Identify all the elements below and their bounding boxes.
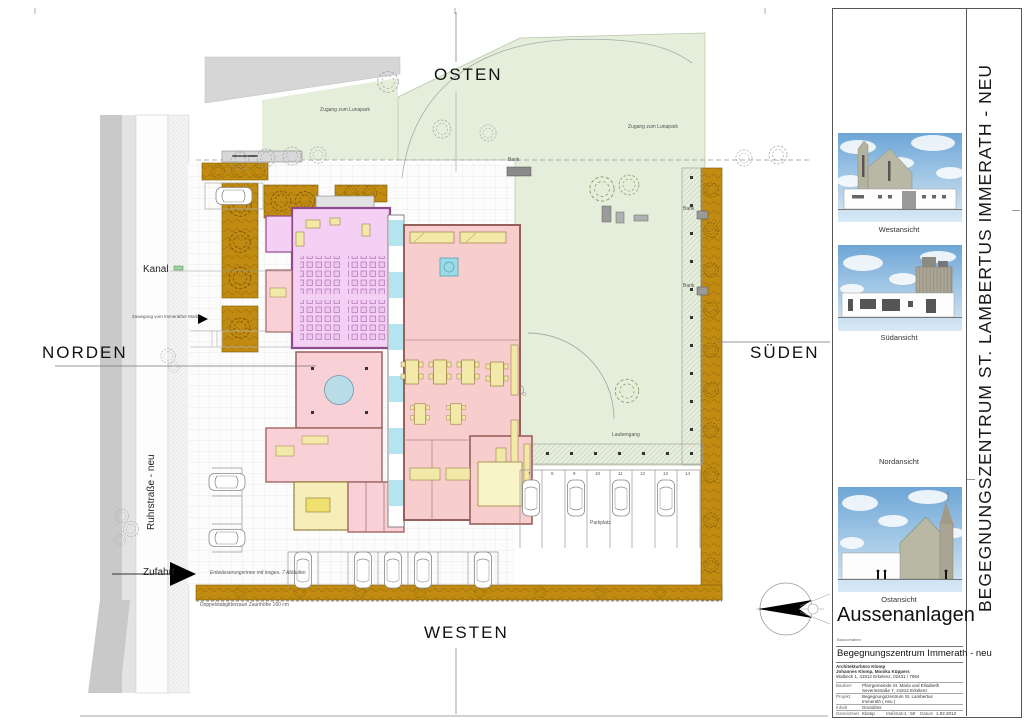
nordansicht-label: Nordansicht	[832, 457, 966, 466]
laubengang-label: Laubengang	[612, 433, 640, 439]
zufahrt-label: Zufahrt	[143, 567, 175, 578]
nordansicht-rendering	[838, 360, 962, 452]
zuwegung-label: Zuwegung vom Immerather Markt	[132, 315, 200, 320]
ostansicht-rendering	[838, 487, 962, 592]
stall-number: 11	[618, 472, 623, 477]
kanal-label: Kanal	[143, 264, 169, 275]
fountain	[440, 258, 458, 276]
stall-number: 13	[663, 472, 668, 477]
stall-number: 8	[551, 472, 554, 477]
sheet-title: Aussenanlagen	[837, 604, 975, 626]
architect-block: Architekturbüro Klomp Johannes Klomp, Mo…	[836, 664, 963, 679]
row-label: Inhalt	[836, 705, 862, 710]
titleblock-footer: Gezeichnet Klomp Maßstab 1 : 50 Datum 1.…	[836, 710, 963, 716]
stall-number: 14	[685, 472, 690, 477]
suedansicht-rendering	[838, 245, 962, 331]
row-label: Projekt	[836, 694, 862, 704]
drawing-sheet: NORDEN OSTEN SÜDEN WESTEN Kanal Zuwegung…	[0, 0, 1024, 724]
scale-label: Maßstab	[886, 711, 904, 716]
drawn-label: Gezeichnet	[836, 711, 862, 716]
lunapark-access-label-west: Zugang zum Lunapark	[320, 108, 370, 114]
compass-north-label: NORDEN	[42, 344, 128, 363]
westansicht-label: Westansicht	[832, 225, 966, 234]
stall-number: 9	[573, 472, 576, 477]
street-label: Ruhrstraße - neu	[146, 420, 157, 530]
compass-east-label: OSTEN	[434, 66, 503, 85]
suedansicht-label: Südansicht	[832, 333, 966, 342]
side-title: BEGEGNUNGSZENTRUM ST. LAMBERTUS IMMERATH…	[976, 112, 995, 612]
row-value2: Immerath ( neu )	[862, 699, 895, 704]
building-complex	[266, 196, 532, 532]
drawn-value: Klomp	[862, 711, 886, 716]
divider	[836, 662, 963, 663]
row-label: Bauherr	[836, 683, 862, 693]
info-marker-box	[222, 151, 302, 162]
compass-west-label: WESTEN	[424, 624, 509, 643]
row-value2: Severinstraße 7, 41812 Erkelenz	[862, 688, 928, 693]
stall-number: 10	[595, 472, 600, 477]
date-value: 1.02.2013	[936, 711, 956, 716]
panel-tick	[967, 479, 975, 480]
date-label: Datum	[920, 711, 936, 716]
compass-south-label: SÜDEN	[750, 344, 820, 363]
stall-number: 7	[528, 472, 531, 477]
category-label: Bauvorhaben	[837, 638, 861, 642]
titleblock-row: Inhalt Grundriss	[836, 704, 963, 710]
divider	[836, 646, 963, 647]
stall-number: 12	[640, 472, 645, 477]
row-value: Grundriss	[862, 705, 963, 710]
parkplatz-label: Parkplatz	[590, 521, 611, 527]
titleblock-rows: Bauherr Pfarrgemeinde St. Maria und Elis…	[836, 682, 963, 716]
fence-note: Doppelstabgitterzaun Zaunhöhe 160 cm	[200, 603, 289, 609]
ostansicht-label: Ostansicht	[832, 595, 966, 604]
bank-label-east-1: Bank	[683, 207, 694, 213]
project-name: Begegnungszentrum Immerath - neu	[837, 649, 992, 659]
bank-label-top: Bank	[508, 158, 519, 164]
scale-value: 1 : 50	[904, 711, 920, 716]
titleblock-row: Bauherr Pfarrgemeinde St. Maria und Elis…	[836, 682, 963, 693]
drain-note: Entwässerungsrinne mit insges. 7 Abläufe…	[210, 571, 306, 577]
panel-tick	[1012, 210, 1020, 211]
lunapark-access-label-east: Zugang zum Lunapark	[628, 125, 678, 131]
westansicht-rendering	[838, 133, 962, 222]
street-ruhrstrasse	[88, 115, 189, 693]
bank-label-east-2: Bank	[683, 284, 694, 290]
titleblock-row: Projekt Begegnungszentrum St. Lambertus …	[836, 693, 963, 704]
architect-address: Walbeck 1, 41812 Erkelenz, 02431 / 7984	[836, 674, 963, 679]
round-feature	[325, 376, 354, 405]
north-arrow-icon	[756, 583, 830, 635]
